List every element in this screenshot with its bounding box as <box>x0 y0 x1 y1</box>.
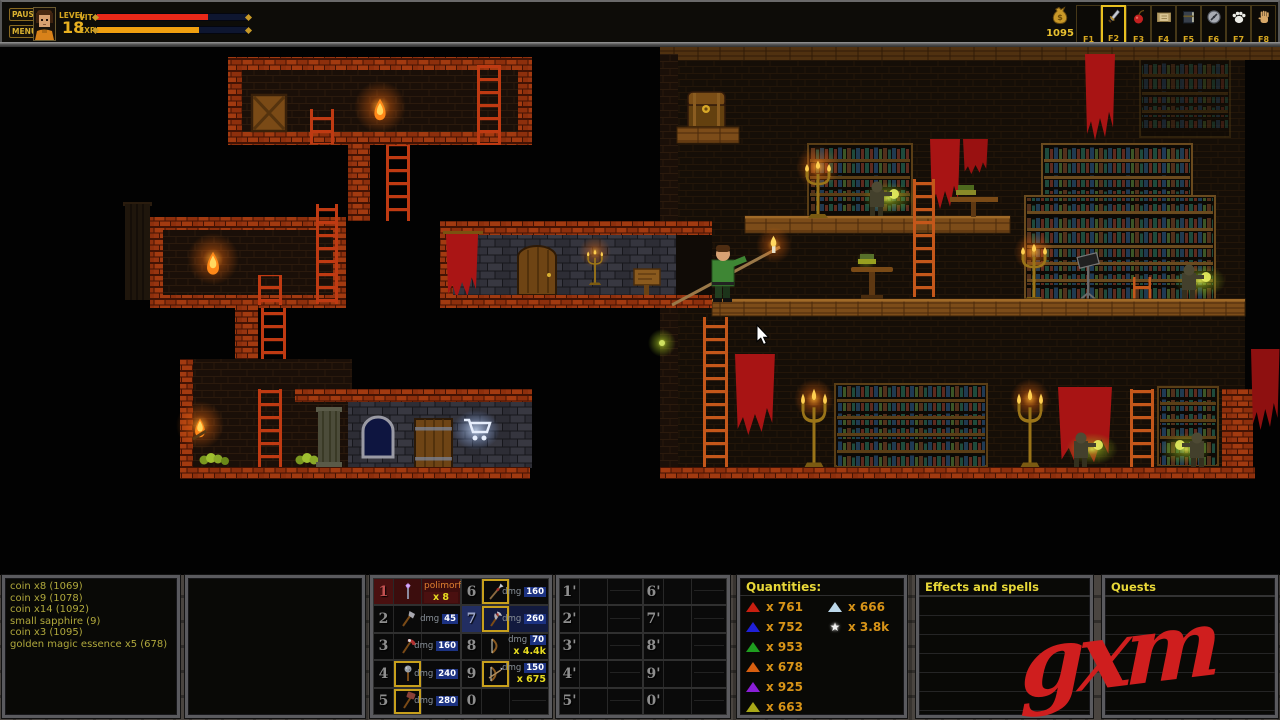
shop-cart-icon[interactable] <box>452 410 500 450</box>
coin-count: 1095 <box>1045 29 1075 39</box>
blue-triangle-icon <box>746 622 760 632</box>
red-triangle-icon <box>746 602 760 612</box>
hud-topbar: PAUSE MENU LEVEL 18 VIT EXP $ 1095 <box>0 0 1280 47</box>
hotbar2-slot-0[interactable]: 0' <box>643 688 727 715</box>
vit-bar-fill <box>97 14 208 20</box>
fslot-f4[interactable]: F4 <box>1151 5 1176 46</box>
empty-log-panel <box>185 575 365 718</box>
fslot-f3[interactable]: F3 <box>1126 5 1151 46</box>
hotbar2-slot-1[interactable]: 1' <box>559 578 643 605</box>
torch-flame <box>354 81 406 133</box>
brick-floor <box>660 467 1255 479</box>
log-line: small sapphire (9) <box>10 616 172 628</box>
ladder[interactable] <box>703 317 728 467</box>
ammo-row: x 678 <box>742 657 807 677</box>
ladder[interactable] <box>258 275 282 305</box>
fruit-icon <box>1131 9 1147 25</box>
green-triangle-icon <box>746 642 760 652</box>
effects-panel: Effects and spells <box>916 575 1093 718</box>
sword-icon <box>1106 9 1122 25</box>
bookshelf <box>835 384 987 466</box>
torch-flame <box>176 401 224 449</box>
hotbar2-slot-8[interactable]: 8' <box>643 633 727 660</box>
game-world[interactable] <box>0 47 1280 575</box>
quantities-panel: Quantities: x 761 x 752 x 953 x 678 x 92… <box>737 575 907 718</box>
ladder[interactable] <box>386 145 410 221</box>
quests-panel: Quests <box>1102 575 1278 718</box>
log-line: coin x3 (1095) <box>10 627 172 639</box>
hotbar-slot-2[interactable]: 2 dmg45 <box>373 605 461 632</box>
quantities-header: Quantities: <box>740 578 904 595</box>
scroll-icon <box>1156 9 1172 25</box>
weapon-hotbar-panel: 1 polimorf x 8 2 dmg45 3 <box>370 575 552 718</box>
hotbar-slot-4[interactable]: 4 dmg240 <box>373 660 461 687</box>
hotbar2-slot-6[interactable]: 6' <box>643 578 727 605</box>
exp-bar-fill <box>97 27 199 33</box>
door[interactable] <box>415 419 452 469</box>
wooden-platform <box>712 299 1245 316</box>
brick-floor <box>180 467 530 479</box>
hotbar2-slot-2[interactable]: 2' <box>559 605 643 632</box>
fslot-f5[interactable]: F5 <box>1176 5 1201 46</box>
ammo-row: x 752 <box>742 617 807 637</box>
orange-triangle-icon <box>746 662 760 672</box>
ladder[interactable] <box>258 389 282 469</box>
brick-wall <box>1222 389 1253 469</box>
stone-pillar <box>316 407 342 467</box>
effects-header: Effects and spells <box>919 578 1090 597</box>
log-line: coin x14 (1092) <box>10 604 172 616</box>
ammo-row: x 953 <box>742 637 807 657</box>
hotbar2-slot-5[interactable]: 5' <box>559 688 643 715</box>
ammo-row: x 663 <box>742 697 807 717</box>
wooden-platform <box>677 127 739 143</box>
hotbar2-slot-7[interactable]: 7' <box>643 605 727 632</box>
hotbar2-slot-4[interactable]: 4' <box>559 660 643 687</box>
secondary-hotbar-panel: 1' 2' 3' 4' 5' 6' 7' 8' 9' 0' <box>556 575 730 718</box>
hotbar-slot-0[interactable]: 0 <box>461 688 549 715</box>
brick-floor <box>440 295 712 308</box>
avatar <box>33 7 56 41</box>
money-bag-icon: $ <box>1051 5 1069 25</box>
paw-icon <box>1231 9 1247 25</box>
hotbar-slot-3[interactable]: 3 dmg160 <box>373 633 461 660</box>
hotbar-slot-9[interactable]: 9 dmg150 x 675 <box>461 660 549 687</box>
fslot-f2[interactable]: F2 <box>1101 5 1126 46</box>
ladder[interactable] <box>477 65 501 145</box>
purple-triangle-icon <box>746 682 760 692</box>
quests-header: Quests <box>1105 578 1275 597</box>
vit-bar <box>96 13 248 21</box>
hotbar-slot-6[interactable]: 6 dmg160 <box>461 578 549 605</box>
fslot-f6[interactable]: F6 <box>1201 5 1226 46</box>
lightblue-triangle-icon <box>828 602 842 612</box>
empty-slot <box>482 689 510 714</box>
ammo-row: x 925 <box>742 677 807 697</box>
bow-icon <box>482 634 510 659</box>
wooden-platform <box>745 216 1010 233</box>
ammo-row: x 666 <box>824 597 893 617</box>
ladder[interactable] <box>316 204 338 304</box>
log-line: coin x8 (1069) <box>10 581 172 593</box>
star-icon: ★ <box>828 620 842 634</box>
hotbar2-slot-9[interactable]: 9' <box>643 660 727 687</box>
log-line: golden magic essence x5 (678) <box>10 639 172 651</box>
ladder[interactable] <box>1133 277 1151 299</box>
axe-icon <box>394 606 422 631</box>
arched-window <box>363 417 393 457</box>
log-line: coin x9 (1078) <box>10 593 172 605</box>
wooden-crate <box>252 95 286 131</box>
vit-label: VIT <box>79 13 93 22</box>
ladder[interactable] <box>1130 389 1154 467</box>
door[interactable] <box>518 246 556 295</box>
ladder[interactable] <box>913 179 935 297</box>
compass-icon <box>1206 9 1222 25</box>
ammo-row: ★x 3.8k <box>824 617 893 637</box>
fslot-f7[interactable]: F7 <box>1226 5 1251 46</box>
brick-column <box>348 145 370 221</box>
ammo-row: x 761 <box>742 597 807 617</box>
ladder[interactable] <box>310 109 334 144</box>
fslot-f8[interactable]: F8 <box>1251 5 1276 46</box>
book-icon <box>1181 9 1197 25</box>
hotbar-slot-8[interactable]: 8 dmg70 x 4.4k <box>461 633 549 660</box>
svg-text:$: $ <box>1057 13 1063 22</box>
torch-flame <box>187 233 239 285</box>
coin-counter: $ 1095 <box>1045 5 1075 39</box>
hotbar-slot-5[interactable]: 5 dmg280 <box>373 688 461 715</box>
green-lamp <box>648 329 676 357</box>
hand-icon <box>1256 9 1272 25</box>
fslot-f1[interactable]: F1 <box>1076 5 1101 46</box>
hotbar2-slot-3[interactable]: 3' <box>559 633 643 660</box>
hotbar-slot-7[interactable]: 7 dmg260 <box>461 605 549 632</box>
loot-log-panel: coin x8 (1069) coin x9 (1078) coin x14 (… <box>2 575 180 718</box>
exp-bar <box>96 26 248 34</box>
bookshelf <box>1140 59 1230 137</box>
treasure-chest[interactable] <box>688 92 725 127</box>
bottom-hud: coin x8 (1069) coin x9 (1078) coin x14 (… <box>0 575 1280 720</box>
hotbar-slot-1[interactable]: 1 polimorf x 8 <box>373 578 461 605</box>
fkey-slots: F1 F2 F3 F4 <box>1076 5 1276 46</box>
olive-triangle-icon <box>746 702 760 712</box>
wand-icon <box>394 579 422 604</box>
